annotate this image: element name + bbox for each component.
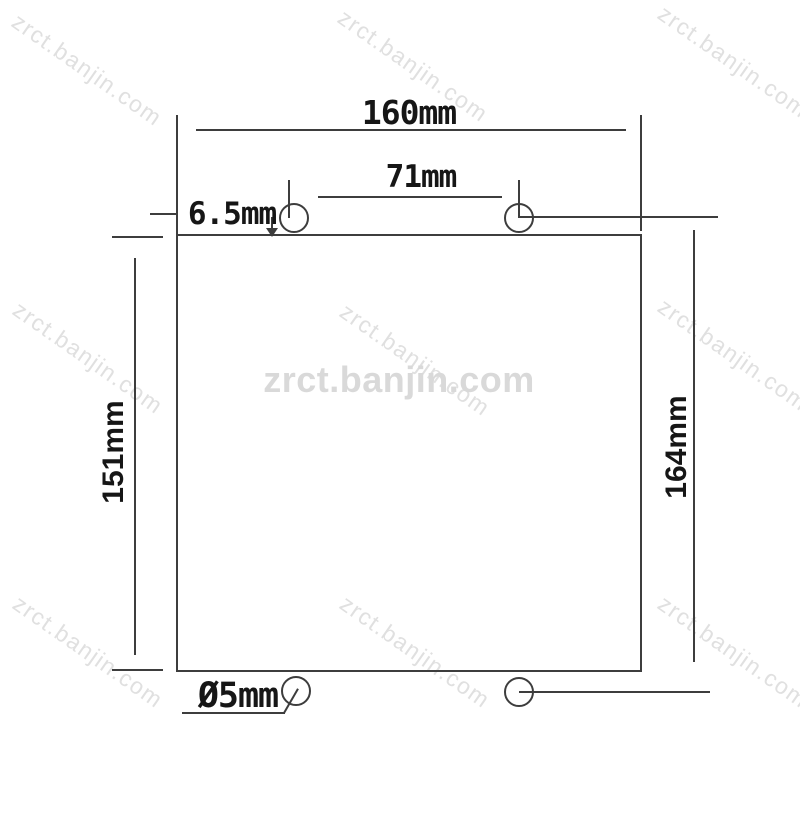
extension-line-71mm-left [288,180,290,218]
watermark-diagonal: zrct.banjin.com [7,8,168,132]
dim-label-top-width: 160mm [329,96,489,131]
dimension-line-71mm [318,196,502,198]
extension-line-71mm-right [518,180,520,218]
watermark-diagonal: zrct.banjin.com [8,590,169,714]
tick-151mm-bottom [112,669,163,671]
watermark-diagonal: zrct.banjin.com [653,0,800,124]
tick-151mm-top [112,236,163,238]
dim-label-right-height: 164mm [661,367,693,527]
watermark-diagonal: zrct.banjin.com [653,590,800,714]
dim-label-hole-diameter: Ø5mm [178,678,298,715]
plate-outline [176,234,642,672]
dimension-drawing: zrct.banjin.com zrct.banjin.com zrct.ban… [0,0,800,826]
reference-tick-6-5mm [150,213,176,215]
watermark-diagonal: zrct.banjin.com [8,296,169,420]
dim-label-hole-offset: 6.5mm [176,198,288,231]
dimension-line-151mm [134,258,136,655]
leader-top-hole-center [519,216,718,218]
extension-line-160mm-right [640,115,642,231]
dim-label-left-height: 151mm [98,372,130,532]
leader-bottom-hole-center [519,691,710,693]
dimension-line-164mm [693,230,695,662]
dim-label-hole-spacing: 71mm [346,161,496,194]
